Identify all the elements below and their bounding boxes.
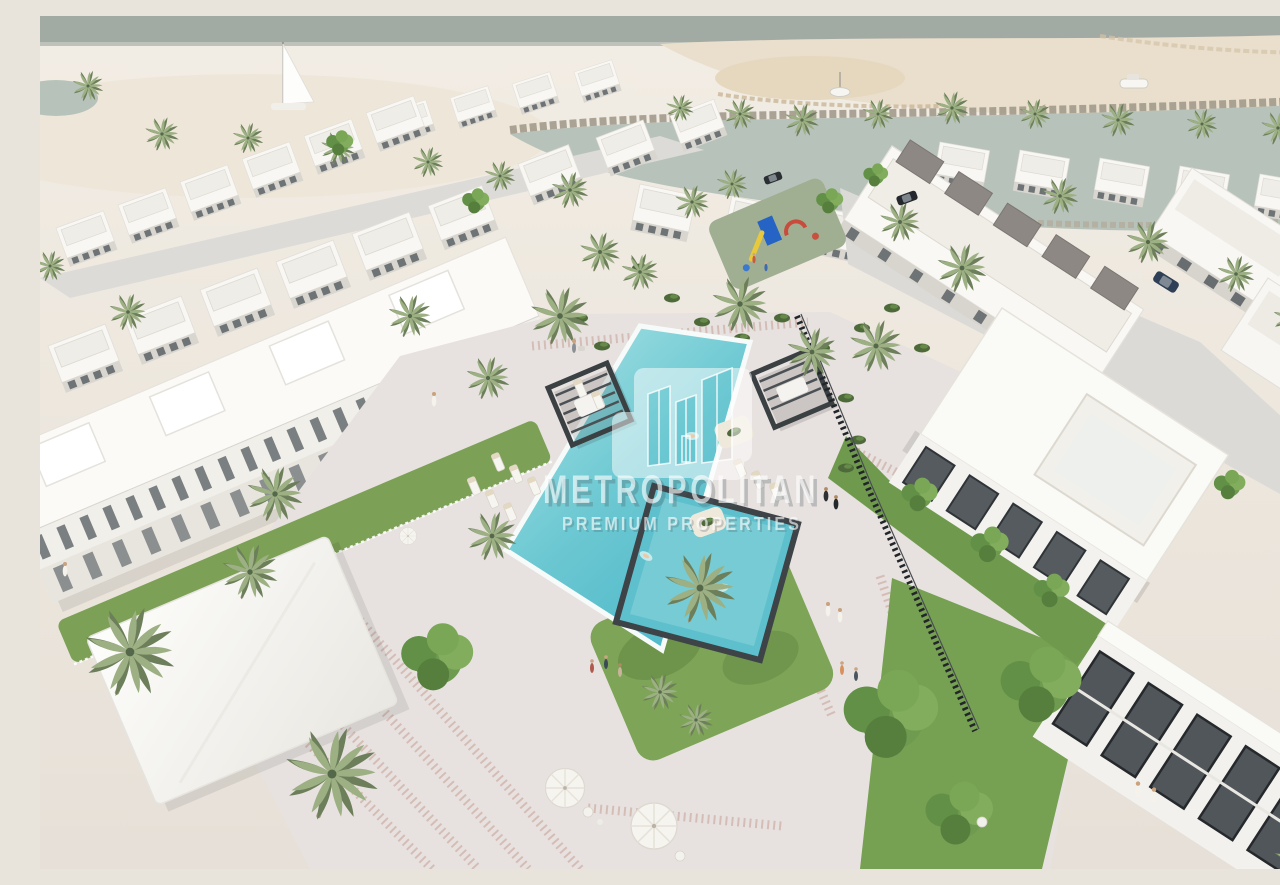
property-rendering: METROPOLITAN METROPOLITAN PREMIUM PROPER… xyxy=(40,16,1280,869)
rendering-canvas: METROPOLITAN METROPOLITAN PREMIUM PROPER… xyxy=(40,16,1280,869)
watermark-title: METROPOLITAN xyxy=(543,468,819,512)
watermark-subtitle: PREMIUM PROPERTIES xyxy=(562,513,802,534)
